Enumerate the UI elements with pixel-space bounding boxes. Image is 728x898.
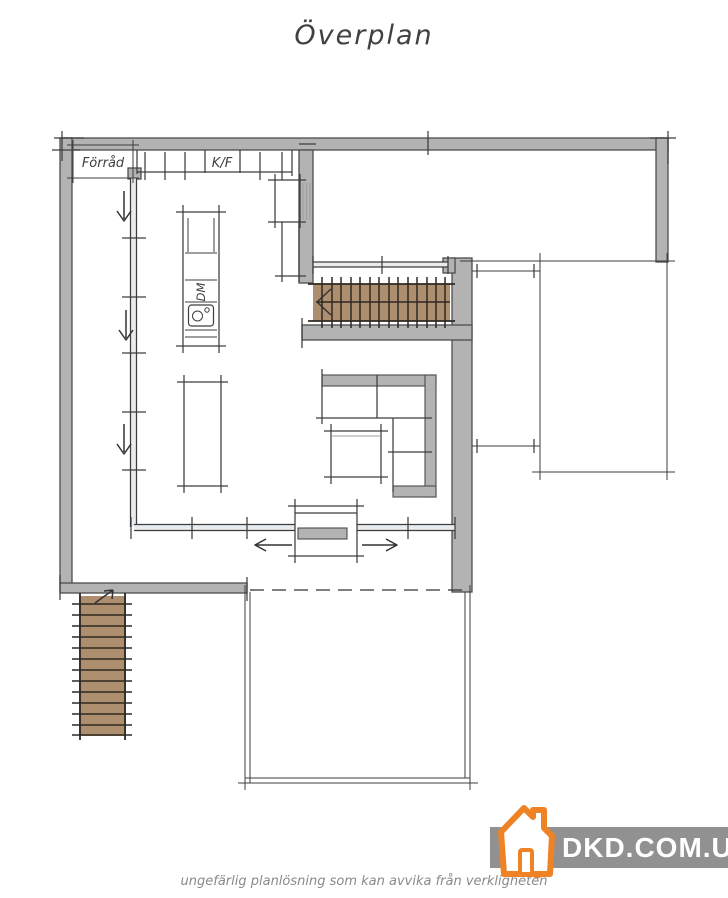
- kitchen: K/F DM: [137, 150, 306, 353]
- floor-plan: Förråd K/F DM: [0, 0, 728, 898]
- wall-stair-bottom: [302, 325, 472, 340]
- dishwasher-label: DM: [194, 283, 208, 302]
- storage-label: Förråd: [82, 156, 125, 171]
- stairs-lower: [72, 590, 132, 740]
- terrace-lower: [238, 585, 478, 790]
- coffee-table: [324, 424, 388, 484]
- coffee-table-outline: [324, 424, 388, 484]
- page: Överplan: [0, 0, 728, 898]
- wall-bottom-left-band: [60, 583, 247, 593]
- stairs-upper: [308, 277, 455, 328]
- wall-left-outer: [60, 138, 72, 585]
- dining-table: [177, 375, 228, 493]
- watermark-text: DKD.COM.UA: [562, 827, 728, 868]
- fireplace-insert: [298, 528, 347, 539]
- sofa-end-cap: [393, 486, 436, 497]
- window-bottom-fill-1: [134, 525, 295, 531]
- window-bottom-fill-2: [357, 525, 455, 531]
- sofa: [316, 369, 436, 497]
- fridge-freezer-label: K/F: [212, 156, 233, 171]
- house-icon: [494, 804, 558, 878]
- balcony-right-ticks: [477, 264, 534, 453]
- bottom-window-door-arrows: [255, 539, 397, 551]
- plan-disclaimer: ungefärlig planlösning som kan avvika fr…: [0, 874, 728, 889]
- sofa-back-right: [425, 375, 436, 497]
- balcony-right: [460, 253, 675, 480]
- wall-top: [62, 138, 668, 150]
- wall-right-outer: [656, 138, 668, 262]
- house-icon-door: [520, 850, 532, 874]
- door-arrows: [117, 191, 397, 551]
- fireplace: [288, 499, 364, 563]
- stair-railing-fill: [313, 262, 448, 267]
- kitchen-island-outline: [176, 205, 226, 353]
- glazed-walls: [122, 178, 455, 539]
- wall-window-top-cap: [128, 168, 141, 179]
- terrace-outline: [238, 585, 478, 790]
- sofa-back-top: [322, 375, 436, 386]
- wall-stair-right: [452, 258, 472, 592]
- balcony-right-connectors: [472, 271, 540, 446]
- stairs-lower-fill: [79, 596, 126, 736]
